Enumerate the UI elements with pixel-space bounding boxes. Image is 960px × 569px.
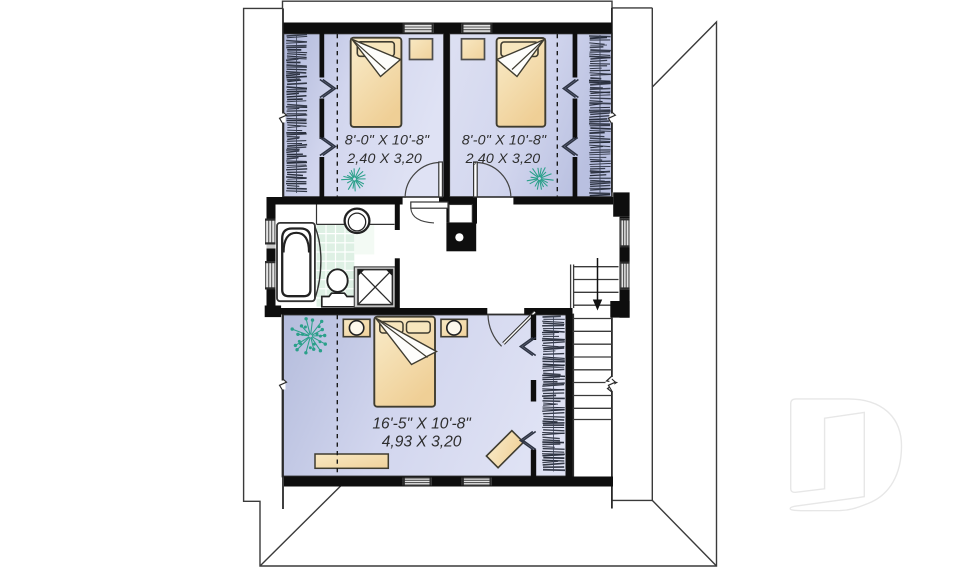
svg-text:8'-0" X 10'-8": 8'-0" X 10'-8": [462, 132, 547, 148]
svg-text:4,93 X 3,20: 4,93 X 3,20: [382, 434, 462, 451]
svg-text:16'-5" X 10'-8": 16'-5" X 10'-8": [372, 416, 472, 433]
svg-text:2,40 X 3,20: 2,40 X 3,20: [346, 151, 422, 167]
svg-text:8'-0" X 10'-8": 8'-0" X 10'-8": [345, 132, 430, 148]
svg-text:2,40 X 3,20: 2,40 X 3,20: [465, 151, 541, 167]
